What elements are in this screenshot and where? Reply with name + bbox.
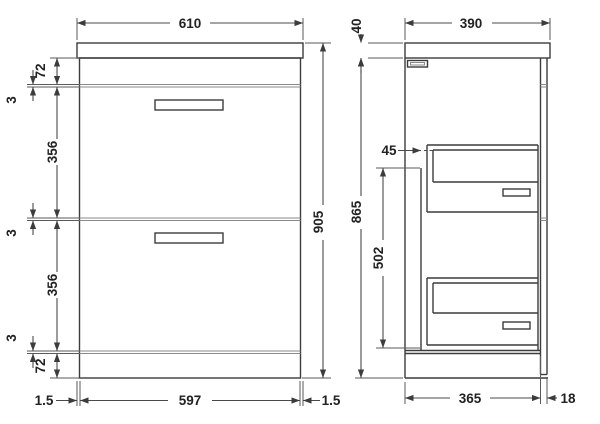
dim-front-gap-left: 1.5 — [35, 393, 54, 408]
drawer-gap-lines — [80, 85, 301, 354]
dim-front-width-front: 597 — [179, 393, 202, 408]
worktop-side — [405, 43, 550, 58]
side-view — [405, 43, 550, 378]
dim-side-worktop-thickness: 40 — [349, 18, 364, 33]
dim-front-band-top: 72 — [33, 63, 48, 78]
dim-front-gap-right: 1.5 — [322, 393, 341, 408]
front-view — [77, 43, 303, 378]
drawer-2-slide — [503, 322, 530, 329]
dim-front-drawer-1: 356 — [45, 140, 60, 163]
front-panel-strip — [541, 58, 548, 375]
technical-drawing-vanity-unit: 610 72 3 356 3 356 3 72 — [0, 0, 600, 424]
dim-front-drawer-2: 356 — [45, 273, 60, 296]
dim-front-gap-3: 3 — [4, 334, 19, 342]
dim-side-depth-top: 390 — [460, 16, 483, 31]
dim-front-band-bottom: 72 — [33, 358, 48, 373]
drawer-1-handle — [155, 100, 223, 110]
dim-side-height-cabinet: 865 — [349, 200, 364, 223]
drawer-2-handle — [155, 233, 223, 243]
front-view-dimensions: 610 72 3 356 3 356 3 72 — [4, 16, 341, 408]
worktop-front — [77, 43, 303, 58]
overflow-slot-inner — [411, 63, 425, 66]
dim-front-width-top: 610 — [179, 16, 202, 31]
dim-side-front-thickness: 18 — [560, 391, 576, 406]
dim-front-height-overall: 905 — [311, 210, 326, 233]
drawer-box-1 — [427, 145, 538, 212]
dim-front-gap-1: 3 — [4, 96, 19, 104]
dim-side-depth-cabinet: 365 — [459, 391, 482, 406]
side-view-dimensions: 390 40 865 45 502 365 18 — [349, 16, 576, 406]
drawer-1-slide — [503, 189, 530, 196]
dim-front-gap-2: 3 — [4, 229, 19, 237]
drawing-canvas: 610 72 3 356 3 356 3 72 — [0, 0, 600, 424]
drawer-box-2 — [427, 278, 538, 345]
dim-side-drawer-zone-height: 502 — [371, 247, 386, 270]
dim-side-back-clearance: 45 — [381, 143, 397, 158]
